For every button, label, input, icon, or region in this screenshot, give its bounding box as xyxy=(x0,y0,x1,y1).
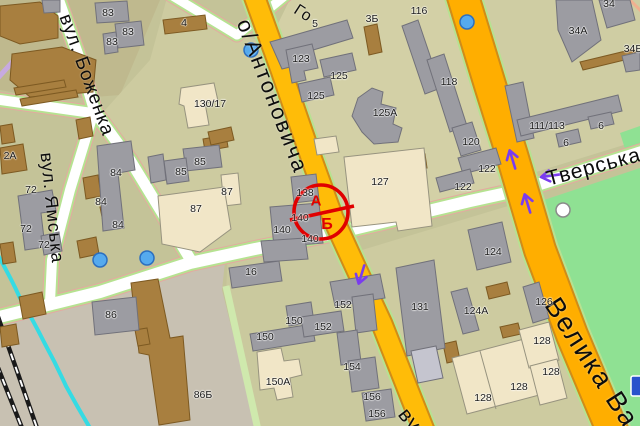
park-poi-circle-icon[interactable] xyxy=(556,203,570,217)
map-viewport[interactable]: вул. Боженкавул. Ямськао/АнтоновичаВелик… xyxy=(0,0,640,426)
poi-dot-icon[interactable] xyxy=(460,15,474,29)
metro-station-icon[interactable] xyxy=(631,376,640,396)
poi-dot-icon[interactable] xyxy=(93,253,107,267)
poi-dot-icon[interactable] xyxy=(244,43,258,57)
poi-dot-icon[interactable] xyxy=(140,251,154,265)
map-canvas[interactable] xyxy=(0,0,640,426)
